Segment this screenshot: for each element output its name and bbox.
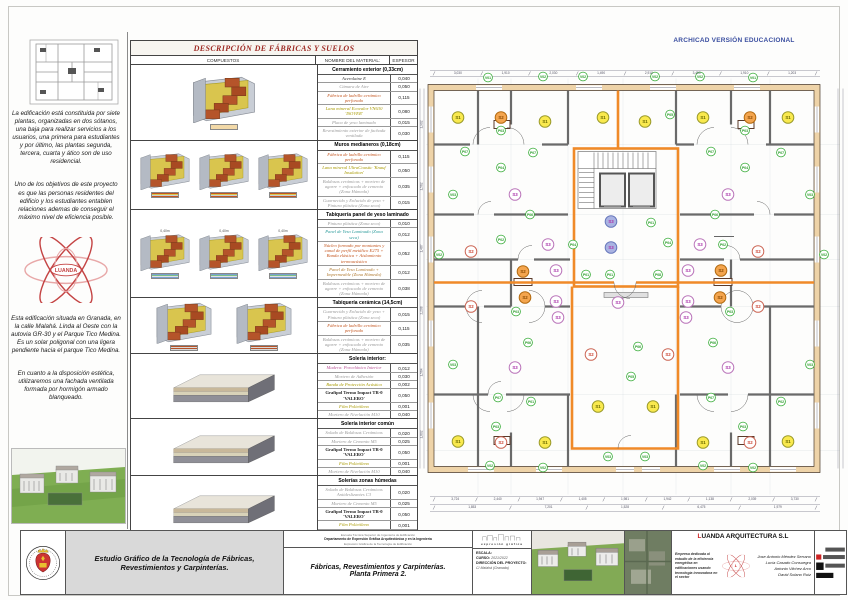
plan-label-v02: V02	[539, 72, 548, 81]
plan-label-p03: P03	[741, 126, 750, 135]
plan-label-p03: P03	[739, 422, 748, 431]
archicad-banner: ARCHICAD VERSIÓN EDUCACIONAL	[648, 37, 820, 44]
svg-text:1,562: 1,562	[420, 182, 424, 190]
column-compuestos: COMPUESTOS	[131, 56, 316, 64]
composite-images	[131, 141, 318, 210]
svg-text:1,487: 1,487	[420, 244, 424, 252]
plan-label-v01: V01	[484, 73, 493, 82]
plan-label-s2: S2	[714, 292, 726, 304]
material-name: Mortero de Nivelación M10	[318, 411, 390, 418]
plan-label-v01: V01	[749, 73, 758, 82]
plan-label-s2: S2	[465, 301, 477, 313]
svg-text:P06: P06	[635, 345, 641, 349]
svg-text:V02: V02	[821, 253, 827, 257]
svg-text:S2: S2	[468, 304, 474, 309]
material-row: Film Polietileno0,001	[318, 403, 417, 411]
svg-text:S2: S2	[522, 295, 528, 300]
material-name: Film Polietileno	[318, 403, 390, 410]
svg-text:S3: S3	[615, 300, 621, 305]
svg-text:P02: P02	[720, 243, 726, 247]
svg-text:S2: S2	[718, 268, 724, 273]
svg-text:S2: S2	[588, 352, 594, 357]
material-row: Cámara de Aire0,050	[318, 83, 417, 91]
material-name: Pintura plástica (Zona seca)	[318, 220, 390, 227]
plan-label-p01: P01	[582, 270, 591, 279]
material-thickness: 0,001	[390, 521, 417, 528]
plan-label-v02: V02	[539, 463, 548, 472]
svg-text:S2: S2	[468, 249, 474, 254]
wall-detail-image	[198, 152, 250, 190]
material-thickness: 0,040	[390, 468, 417, 475]
material-thickness: 0,010	[390, 220, 417, 227]
sidebar: La edificación está constituida por siet…	[9, 110, 123, 417]
plan-label-s3: S3	[682, 265, 694, 277]
svg-text:P03: P03	[727, 310, 733, 314]
material-name: Guarnecido y Enlucido de yeso + Pintura …	[318, 197, 390, 210]
materials-table-title: DESCRIPCIÓN DE FÁBRICAS Y SUELOS	[131, 41, 417, 56]
svg-text:S1: S1	[700, 440, 706, 445]
plan-label-s1: S1	[452, 436, 464, 448]
material-thickness: 0,115	[390, 151, 417, 164]
composite-images	[131, 476, 318, 533]
material-name: Grafipol Termo Impact TR-0 'VALERO'	[318, 446, 390, 459]
plan-label-p04: P04	[741, 163, 750, 172]
svg-text:P03: P03	[513, 310, 519, 314]
curso-label: CURSO:	[476, 556, 490, 560]
svg-text:S3: S3	[555, 315, 561, 320]
svg-text:S1: S1	[785, 115, 791, 120]
plan-label-s2: S2	[519, 292, 531, 304]
svg-text:S3: S3	[683, 315, 689, 320]
material-name: Panel de Yeso Laminado (Zona seca)	[318, 228, 390, 241]
material-thickness: 0,050	[390, 83, 417, 90]
building-render-image	[11, 448, 126, 524]
material-name: Acerolaine E	[318, 75, 390, 82]
material-name: Fábrica de ladrillo cerámico perforado	[318, 151, 390, 164]
plan-label-p06: P06	[524, 338, 533, 347]
svg-text:S2: S2	[498, 440, 504, 445]
svg-text:V03: V03	[807, 193, 813, 197]
svg-text:1,490: 1,490	[597, 71, 605, 75]
plan-label-p04: P04	[664, 238, 673, 247]
material-thickness: 0,035	[390, 178, 417, 196]
material-row: Solado de Baldosas Cerámicas0,020	[318, 429, 417, 437]
svg-text:S3: S3	[608, 219, 614, 224]
svg-text:1,910: 1,910	[740, 71, 748, 75]
plan-label-v03: V03	[641, 452, 650, 461]
exterior-walls	[428, 85, 820, 473]
material-row: Grafipol Termo Impact TR-0 'VALERO'0,050	[318, 446, 417, 460]
material-thickness: 0,040	[390, 411, 417, 418]
material-name: Baldosas cerámicas + mortero de agarre +…	[318, 336, 390, 354]
svg-text:P06: P06	[525, 341, 531, 345]
table-section: Tabiquería cerámica (14,5cm)Guarnecido y…	[131, 298, 417, 354]
table-section: Solería interior comúnSolado de Baldosas…	[131, 419, 417, 476]
plan-label-s2: S2	[752, 246, 764, 258]
plan-label-v03: V03	[449, 190, 458, 199]
svg-text:S2: S2	[755, 249, 761, 254]
plan-label-v02: V02	[435, 250, 444, 259]
scale-block: expresión gráfica ESCALA: CURSO: 2021/20…	[473, 531, 532, 594]
plan-label-s3: S3	[550, 296, 562, 308]
material-name: Lana mineral Ecovalor VN630 'ISOVER'	[318, 105, 390, 118]
plan-label-p06: P06	[634, 342, 643, 351]
material-row: Mortero de Cemento M50,025	[318, 438, 417, 446]
svg-text:P04: P04	[498, 166, 504, 170]
svg-text:1,405: 1,405	[579, 497, 587, 501]
interior-walls	[434, 91, 814, 467]
material-thickness: 0,015	[390, 308, 417, 321]
svg-text:S1: S1	[650, 404, 656, 409]
material-name: Placa de yeso laminado	[318, 119, 390, 126]
svg-text:1,902: 1,902	[420, 120, 424, 128]
plan-label-v02: V02	[699, 461, 708, 470]
plan-label-s1: S1	[592, 401, 604, 413]
material-name: Mortero de Adhesión	[318, 373, 390, 380]
svg-text:P05: P05	[667, 113, 673, 117]
svg-text:S1: S1	[700, 115, 706, 120]
svg-text:V02: V02	[436, 253, 442, 257]
svg-text:V03: V03	[450, 193, 456, 197]
svg-text:V02: V02	[580, 75, 586, 79]
svg-text:S3: S3	[725, 192, 731, 197]
material-name: Panel de Yeso Laminado + Impermeable (Zo…	[318, 266, 390, 279]
plan-label-p03: P03	[726, 307, 735, 316]
svg-text:V03: V03	[642, 455, 648, 459]
material-legend-bar	[210, 273, 238, 279]
plan-label-s3: S3	[682, 296, 694, 308]
plan-label-p02: P02	[719, 240, 728, 249]
material-name: Film Polietileno	[318, 521, 390, 528]
plan-label-s3: S3	[605, 216, 617, 228]
image-dimension-note: 0,40m	[160, 229, 169, 233]
svg-text:1,942: 1,942	[663, 497, 671, 501]
material-row: Film Polietileno0,001	[318, 460, 417, 468]
material-thickness: 0,020	[390, 429, 417, 436]
svg-text:3,030: 3,030	[454, 71, 462, 75]
svg-text:2,910: 2,910	[645, 71, 653, 75]
material-thickness: 0,050	[390, 446, 417, 459]
svg-text:S1: S1	[542, 119, 548, 124]
svg-text:P03: P03	[740, 425, 746, 429]
material-row: Acerolaine E0,040	[318, 75, 417, 83]
svg-text:P03: P03	[498, 129, 504, 133]
plan-label-s3: S3	[612, 297, 624, 309]
material-thickness: 0,001	[390, 460, 417, 467]
material-row: Baldosas cerámicas + mortero de agarre +…	[318, 336, 417, 354]
material-name: Fábrica de ladrillo cerámico perforado	[318, 322, 390, 335]
plan-label-s3: S3	[605, 242, 617, 254]
plan-label-p07: P07	[529, 148, 538, 157]
material-thickness: 0,050	[390, 164, 417, 177]
svg-text:P03: P03	[742, 129, 748, 133]
svg-text:2,440: 2,440	[494, 497, 502, 501]
svg-text:3,724: 3,724	[451, 497, 459, 501]
sidebar-paragraphs-top: La edificación está constituida por siet…	[9, 110, 123, 222]
plan-label-p02: P02	[497, 235, 506, 244]
svg-text:S3: S3	[608, 245, 614, 250]
material-thickness: 0,002	[390, 381, 417, 388]
svg-text:S1: S1	[455, 115, 461, 120]
svg-text:S2: S2	[747, 440, 753, 445]
plan-label-s1: S1	[597, 112, 609, 124]
svg-text:1,981: 1,981	[621, 497, 629, 501]
luanda-atom-logo: LUANDA	[20, 237, 112, 303]
department-header: Escuela Técnica Superior de Ingeniería d…	[284, 531, 472, 548]
material-thickness: 0,012	[390, 266, 417, 279]
expresion-grafica-logo: expresión gráfica	[473, 531, 531, 549]
material-row: Fábrica de ladrillo cerámico perforado0,…	[318, 92, 417, 106]
material-name: Baldosas cerámicas + mortero de agarre +…	[318, 178, 390, 196]
svg-text:6,475: 6,475	[697, 505, 705, 509]
wall-detail-image	[198, 233, 250, 271]
svg-text:P08: P08	[655, 273, 661, 277]
plan-label-p01: P01	[647, 218, 656, 227]
company-description: Empresa dedicada al estudio de la eficie…	[675, 552, 719, 579]
plan-label-s3: S3	[694, 239, 706, 251]
material-thickness: 0,050	[390, 389, 417, 402]
plan-label-p07: P07	[707, 147, 716, 156]
svg-text:S1: S1	[642, 119, 648, 124]
plan-label-s2: S2	[585, 349, 597, 361]
material-row: Panel de Yeso Laminado + Impermeable (Zo…	[318, 266, 417, 280]
plan-label-s1: S1	[697, 112, 709, 124]
materials-table: DESCRIPCIÓN DE FÁBRICAS Y SUELOS COMPUES…	[130, 40, 418, 533]
svg-text:1,910: 1,910	[502, 71, 510, 75]
plan-label-p01: P01	[606, 270, 615, 279]
svg-text:V02: V02	[540, 75, 546, 79]
plan-label-v02: V02	[579, 72, 588, 81]
svg-text:S2: S2	[755, 304, 761, 309]
plan-label-s1: S1	[782, 436, 794, 448]
plan-label-s2: S2	[715, 265, 727, 277]
plan-label-s3: S3	[542, 239, 554, 251]
composite-images	[131, 419, 318, 475]
dimension-lines	[420, 71, 843, 512]
composite-images: 0,40m0,40m0,40m	[131, 210, 318, 297]
svg-text:S1: S1	[600, 115, 606, 120]
plan-label-s2: S2	[495, 437, 507, 449]
svg-text:P02: P02	[498, 238, 504, 242]
plan-label-p05: P05	[627, 372, 636, 381]
material-legend-bar	[210, 192, 238, 198]
direccion-label: DIRECCIÓN DEL PROYECTO:	[476, 561, 527, 565]
svg-text:V01: V01	[750, 76, 756, 80]
company-block: LUANDA ARQUITECTURA S.L Empresa dedicada…	[672, 531, 815, 594]
svg-text:S2: S2	[520, 269, 526, 274]
mailboxes	[604, 293, 648, 298]
plan-label-s2: S2	[744, 112, 756, 124]
material-row: Grafipol Termo Impact TR-0 'VALERO'0,050	[318, 508, 417, 522]
material-thickness: 0,052	[390, 242, 417, 265]
table-section: Cerramiento exterior (0,33cm)Acerolaine …	[131, 65, 417, 141]
plan-label-s3: S3	[680, 312, 692, 324]
material-row: Panel de Yeso Laminado (Zona seca)0,012	[318, 228, 417, 242]
svg-text:L: L	[735, 563, 738, 568]
university-crest	[21, 531, 65, 594]
project-render-photo	[532, 531, 625, 594]
wall-detail-image	[155, 301, 213, 344]
company-atom-logo: L	[721, 553, 751, 579]
svg-text:S2: S2	[717, 295, 723, 300]
svg-text:P07: P07	[778, 151, 784, 155]
svg-text:V02: V02	[487, 464, 493, 468]
svg-text:P07: P07	[708, 150, 714, 154]
plan-label-p05: P05	[666, 110, 675, 119]
plan-label-s3: S3	[509, 362, 521, 374]
sidebar-paragraphs-bottom: Esta edificación situada en Granada, en …	[9, 315, 123, 403]
svg-text:S1: S1	[595, 404, 601, 409]
curso-value: 2021/2022	[491, 556, 508, 560]
svg-text:P07: P07	[495, 396, 501, 400]
svg-text:S3: S3	[512, 365, 518, 370]
plan-label-p03: P03	[497, 126, 506, 135]
plan-label-p04: P04	[497, 163, 506, 172]
section-header: Cerramiento exterior (0,33cm)	[318, 65, 417, 75]
material-name: Revestimiento exterior de fachada ventil…	[318, 127, 390, 140]
escala-label: ESCALA:	[476, 551, 492, 555]
plan-label-p01: P01	[527, 397, 536, 406]
materials-table-body: Cerramiento exterior (0,33cm)Acerolaine …	[131, 65, 417, 533]
svg-text:P03: P03	[493, 425, 499, 429]
material-legend-bar	[269, 192, 297, 198]
material-row: Baldosas cerámicas + mortero de agarre +…	[318, 178, 417, 197]
sheet-title-block: Escuela Técnica Superior de Ingeniería d…	[284, 531, 473, 594]
plan-label-p07: P07	[707, 393, 716, 402]
sidebar-divider	[127, 32, 128, 529]
svg-text:V01: V01	[485, 76, 491, 80]
team-member-name: David Solano Ruiz	[753, 572, 811, 578]
material-row: Grafipol Termo Impact TR-0 'VALERO'0,050	[318, 389, 417, 403]
composite-images	[131, 298, 318, 353]
plan-label-p07: P07	[777, 148, 786, 157]
plan-label-s1: S1	[539, 116, 551, 128]
svg-text:S3: S3	[545, 242, 551, 247]
svg-text:2,039: 2,039	[748, 497, 756, 501]
sidebar-paragraph: La edificación está constituida por siet…	[11, 110, 121, 166]
material-name: Mortero de Cemento M5	[318, 438, 390, 445]
material-name: Fábrica de ladrillo cerámico perforado	[318, 92, 390, 105]
material-row: Lana mineral UltraCoustic 'Knauf Insulat…	[318, 164, 417, 178]
material-name: Solado de Baldosas Cerámicas Antidesliza…	[318, 486, 390, 499]
svg-text:S3: S3	[685, 299, 691, 304]
svg-text:1,528: 1,528	[621, 505, 629, 509]
material-name: Film Polietileno	[318, 460, 390, 467]
material-thickness: 0,025	[390, 500, 417, 507]
material-row: Mortero de Adhesión0,030	[318, 373, 417, 381]
plan-label-p02: P02	[777, 397, 786, 406]
plan-label-s3: S3	[509, 189, 521, 201]
svg-text:P02: P02	[778, 400, 784, 404]
material-legend-bar	[210, 124, 238, 130]
table-section: 0,40m0,40m0,40mTabiquería panel de yeso …	[131, 210, 417, 298]
svg-text:P01: P01	[648, 221, 654, 225]
sheet-title: Fábricas, Revestimientos y Carpinterías.	[311, 564, 446, 571]
svg-text:V02: V02	[697, 75, 703, 79]
material-name: Guarnecido y Enlucido de yeso + Pintura …	[318, 308, 390, 321]
drawing-series-title: Estudio Gráfico de la Tecnología de Fábr…	[65, 531, 284, 594]
plan-label-p07: P07	[461, 147, 470, 156]
drawing-sheet: ARCHICAD VERSIÓN EDUCACIONAL La edificac…	[0, 0, 848, 600]
materials-table-header: COMPUESTOS NOMBRE DEL MATERIAL: ESPESOR	[131, 56, 417, 65]
plan-label-s3: S3	[550, 265, 562, 277]
plan-label-s2: S2	[495, 112, 507, 124]
material-thickness: 0,012	[390, 228, 417, 241]
plan-label-v03: V03	[806, 190, 815, 199]
plan-label-s2: S2	[465, 246, 477, 258]
svg-text:1,564: 1,564	[420, 368, 424, 376]
plan-label-s2: S2	[752, 301, 764, 313]
composite-images	[131, 354, 318, 418]
plan-label-p03: P03	[492, 422, 501, 431]
svg-text:P04: P04	[570, 243, 576, 247]
material-thickness: 0,040	[390, 75, 417, 82]
windows	[429, 85, 820, 471]
material-name: Lana mineral UltraCoustic 'Knauf Insulat…	[318, 164, 390, 177]
material-row: Revestimiento exterior de fachada ventil…	[318, 127, 417, 140]
section-header: Solería interior común	[318, 419, 417, 429]
svg-text:2,208: 2,208	[420, 306, 424, 314]
svg-text:2,030: 2,030	[549, 71, 557, 75]
material-legend-bar	[170, 345, 198, 351]
material-thickness: 0,035	[390, 336, 417, 354]
wall-detail-image	[257, 152, 309, 190]
svg-text:1,979: 1,979	[774, 505, 782, 509]
company-name: LUANDA ARQUITECTURA S.L	[675, 533, 811, 540]
floor-buildup-image	[168, 488, 280, 526]
svg-text:P07: P07	[462, 150, 468, 154]
svg-text:V02: V02	[540, 466, 546, 470]
plan-label-p06: P06	[711, 210, 720, 219]
material-legend-bar	[151, 273, 179, 279]
material-row: Mortero de Cemento M50,025	[318, 500, 417, 508]
plan-label-v02: V02	[749, 463, 758, 472]
plan-label-s3: S3	[722, 189, 734, 201]
material-row: Film Polietileno0,001	[318, 521, 417, 529]
plan-label-s1: S1	[539, 437, 551, 449]
svg-text:V02: V02	[750, 466, 756, 470]
luanda-logo-text: LUANDA	[55, 268, 78, 274]
material-thickness: 0,115	[390, 92, 417, 105]
svg-text:S1: S1	[455, 439, 461, 444]
section-header: Tabiquería cerámica (14,5cm)	[318, 298, 417, 308]
material-row: Baldosas cerámicas + mortero de agarre +…	[318, 280, 417, 298]
table-section: Solería interior:Madera: Porcelánico Int…	[131, 354, 417, 419]
plan-label-p06: P06	[709, 338, 718, 347]
material-thickness: 0,050	[390, 508, 417, 521]
plan-label-p03: P03	[512, 307, 521, 316]
material-thickness: 0,115	[390, 322, 417, 335]
material-row: Fábrica de ladrillo cerámico perforado0,…	[318, 322, 417, 336]
section-header: Solería interior:	[318, 354, 417, 364]
material-name: Baldosas cerámicas + mortero de agarre +…	[318, 280, 390, 298]
svg-text:3,730: 3,730	[791, 497, 799, 501]
svg-text:V02: V02	[652, 75, 658, 79]
column-nombre-material: NOMBRE DEL MATERIAL:	[316, 56, 389, 64]
svg-text:1,138: 1,138	[706, 497, 714, 501]
wall-detail-image	[257, 233, 309, 271]
material-thickness: 0,020	[390, 486, 417, 499]
svg-text:S3: S3	[725, 365, 731, 370]
material-name: Cámara de Aire	[318, 83, 390, 90]
material-row: Madera: Porcelánico Interior0,012	[318, 364, 417, 372]
material-row: Banda de Protección Acústica0,002	[318, 381, 417, 389]
key-plan-thumbnail	[28, 38, 120, 106]
department-name: Departamento de Expresión Gráfica Arquit…	[286, 537, 470, 541]
svg-text:P01: P01	[583, 273, 589, 277]
plan-label-v02: V02	[820, 250, 829, 259]
plan-label-p07: P07	[494, 393, 503, 402]
